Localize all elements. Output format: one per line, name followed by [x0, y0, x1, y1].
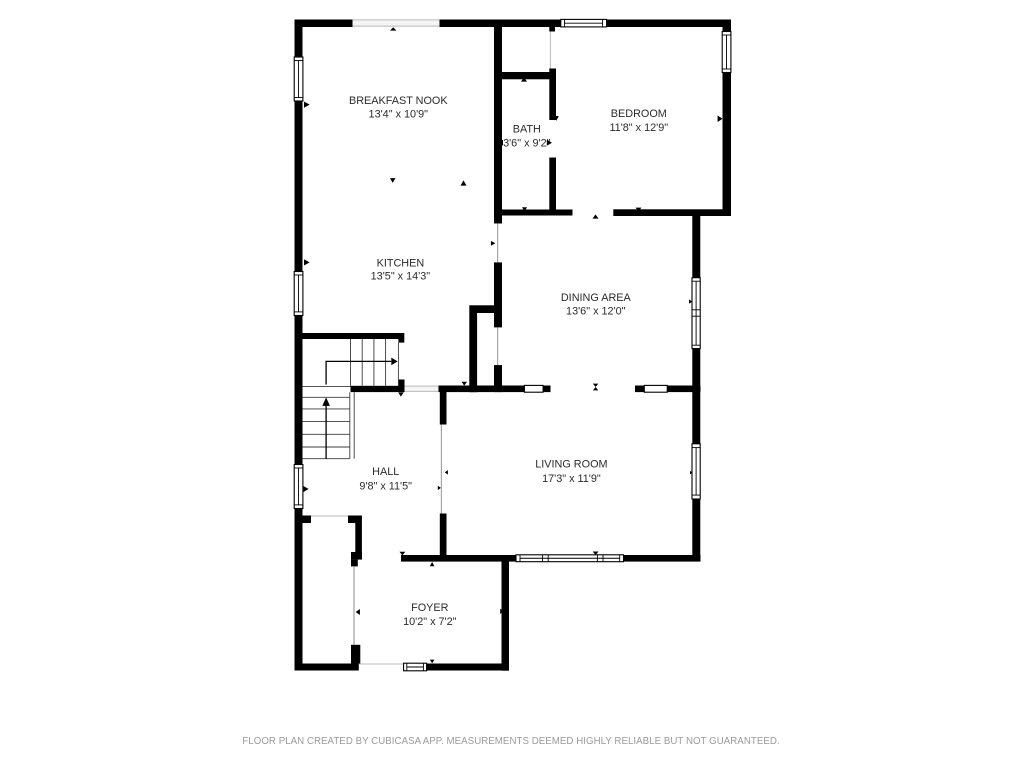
svg-text:HALL: HALL: [372, 466, 399, 478]
svg-text:13'6" x 12'0": 13'6" x 12'0": [566, 305, 626, 317]
svg-text:LIVING ROOM: LIVING ROOM: [535, 458, 607, 470]
svg-text:KITCHEN: KITCHEN: [377, 258, 425, 270]
svg-text:BEDROOM: BEDROOM: [611, 108, 667, 120]
svg-text:13'5" x 14'3": 13'5" x 14'3": [371, 271, 431, 283]
svg-text:3'6" x 9'2": 3'6" x 9'2": [503, 138, 551, 150]
svg-text:9'8" x 11'5": 9'8" x 11'5": [359, 481, 412, 493]
svg-text:BREAKFAST NOOK: BREAKFAST NOOK: [349, 95, 448, 107]
svg-text:FLOOR PLAN CREATED BY CUBICASA: FLOOR PLAN CREATED BY CUBICASA APP. MEAS…: [242, 736, 779, 747]
svg-text:10'2" x 7'2": 10'2" x 7'2": [403, 616, 457, 628]
svg-text:11'8" x 12'9": 11'8" x 12'9": [609, 122, 668, 134]
svg-text:17'3" x 11'9": 17'3" x 11'9": [542, 473, 601, 485]
svg-text:BATH: BATH: [513, 124, 541, 136]
svg-text:13'4" x 10'9": 13'4" x 10'9": [369, 108, 429, 120]
svg-text:FOYER: FOYER: [411, 602, 449, 614]
svg-text:DINING AREA: DINING AREA: [561, 292, 632, 304]
